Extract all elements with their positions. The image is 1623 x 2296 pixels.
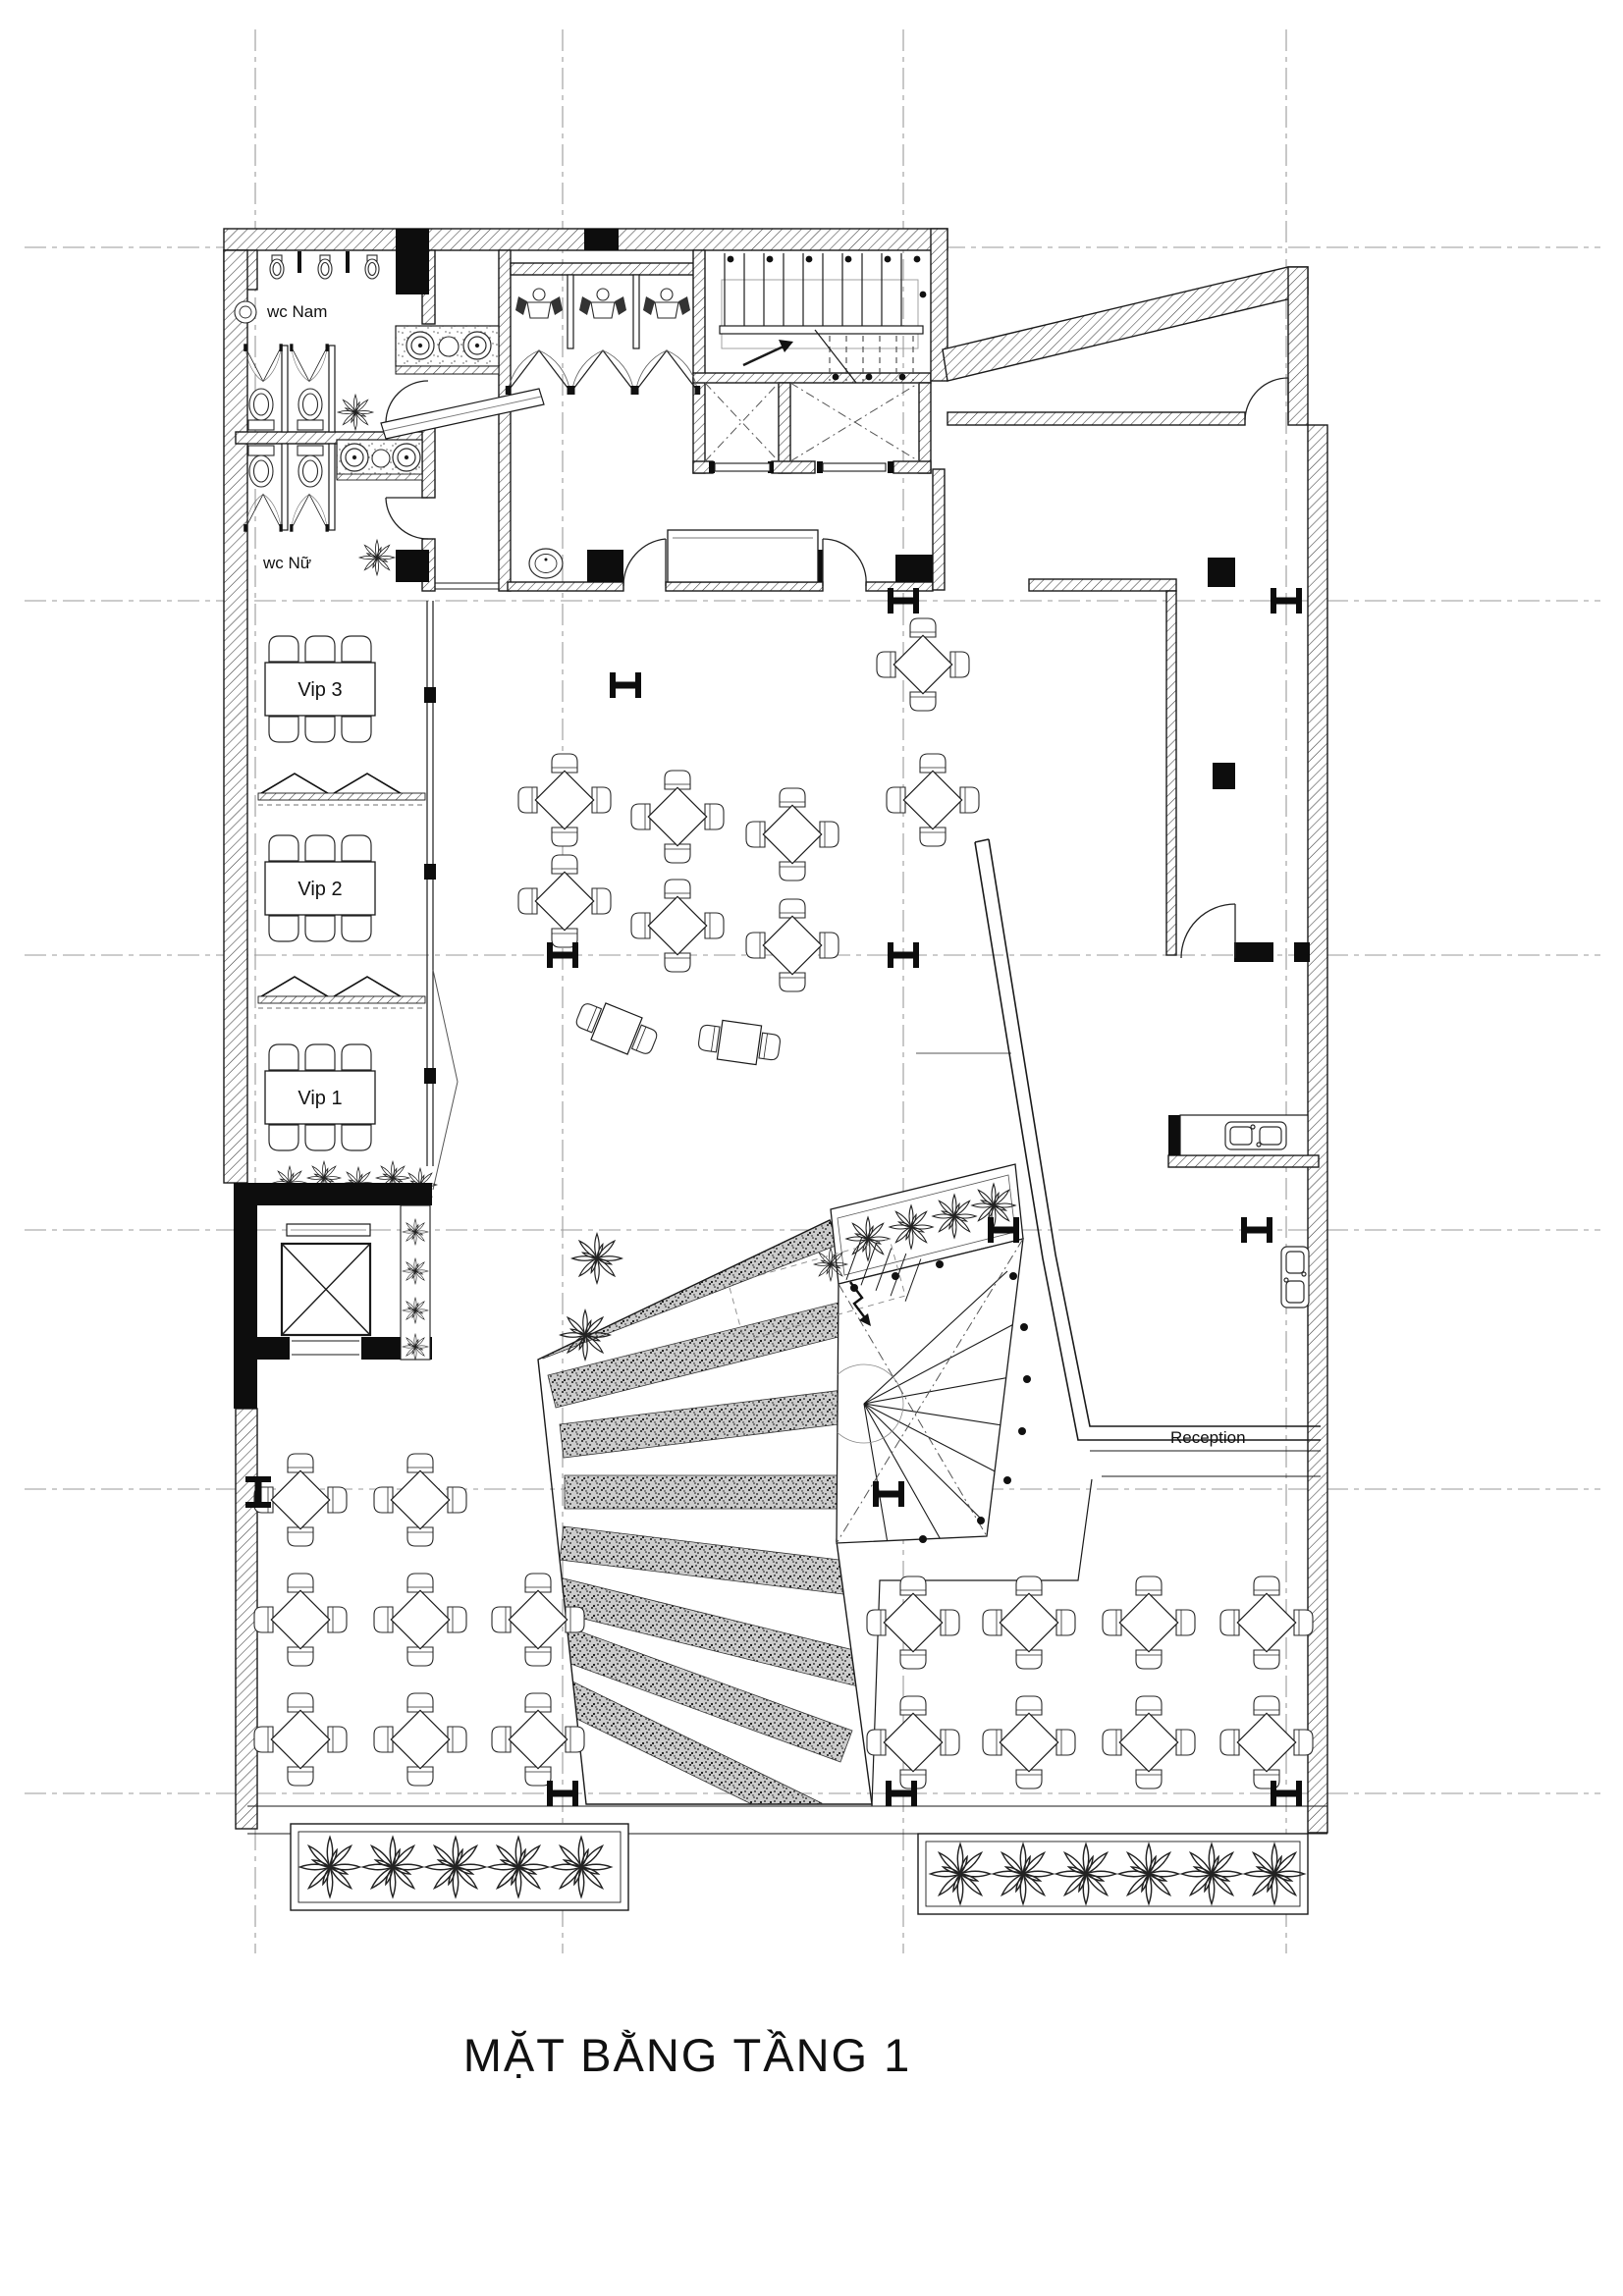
main-staircase	[720, 253, 926, 383]
kitchen-area	[1180, 1115, 1309, 1308]
urinal-icon	[270, 255, 284, 279]
dining-tables-center	[518, 618, 979, 1068]
dining-tables-se	[867, 1576, 1313, 1789]
label-wc-nu: wc Nữ	[262, 554, 311, 572]
central-stair-feature	[516, 1164, 1092, 1833]
sw-elevator	[234, 1183, 432, 1409]
label-vip3: Vip 3	[298, 679, 342, 701]
mid-wall-items	[381, 389, 866, 589]
floor-plan-sheet: wc Nam wc Nữ Vip 3 Vip 2 Vip 1 Reception…	[0, 0, 1623, 2296]
floor-plan-drawing: wc Nam wc Nữ Vip 3 Vip 2 Vip 1 Reception…	[0, 0, 1623, 2296]
plan-title: MẶT BẰNG TẦNG 1	[463, 2029, 912, 2081]
label-vip2: Vip 2	[298, 879, 342, 900]
ne-wedge-corridor	[916, 378, 1288, 1053]
shower-cubicles	[506, 275, 700, 395]
label-vip1: Vip 1	[298, 1088, 342, 1109]
storefront-planters	[247, 1806, 1327, 1914]
elevator-shafts-top	[705, 383, 919, 471]
vip-rooms	[258, 601, 458, 1201]
toilet-icon	[248, 389, 274, 430]
dining-tables-sw	[254, 1454, 584, 1786]
label-reception: Reception	[1170, 1428, 1246, 1447]
label-wc-nam: wc Nam	[266, 302, 327, 321]
